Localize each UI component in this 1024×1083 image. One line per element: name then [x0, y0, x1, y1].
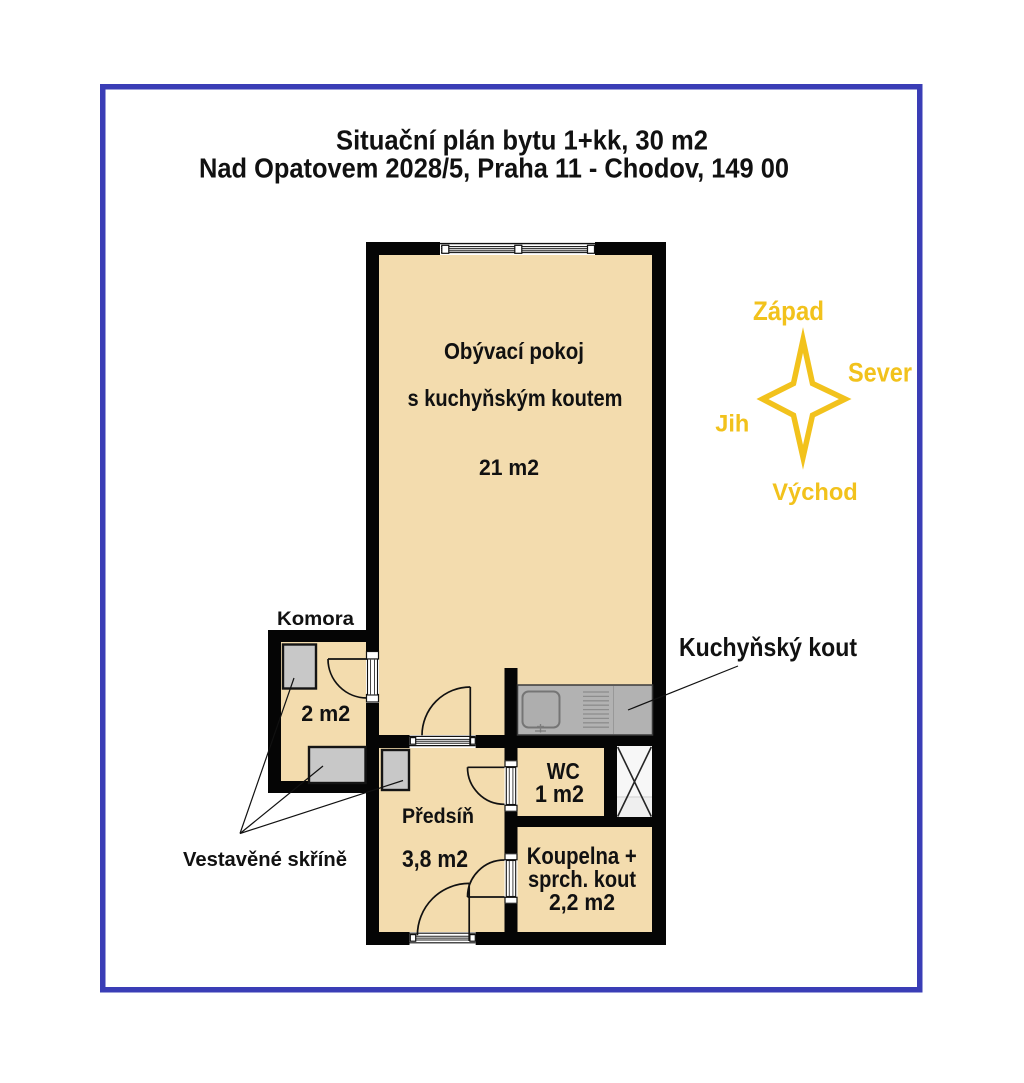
svg-text:Nad Opatovem 2028/5, Praha 11: Nad Opatovem 2028/5, Praha 11 - Chodov, …: [199, 153, 789, 184]
svg-text:s kuchyňským koutem: s kuchyňským koutem: [408, 385, 623, 411]
svg-text:1 m2: 1 m2: [535, 781, 584, 808]
svg-text:2,2 m2: 2,2 m2: [549, 889, 615, 915]
svg-text:Situační plán bytu 1+kk, 30 m2: Situační plán bytu 1+kk, 30 m2: [336, 124, 708, 155]
svg-text:Západ: Západ: [753, 296, 824, 326]
svg-text:Jih: Jih: [715, 411, 749, 438]
svg-text:Východ: Východ: [772, 479, 858, 506]
svg-text:21 m2: 21 m2: [479, 455, 539, 480]
svg-text:Vestavěné skříně: Vestavěné skříně: [183, 848, 347, 871]
svg-text:Komora: Komora: [277, 608, 354, 630]
svg-text:2 m2: 2 m2: [301, 701, 350, 726]
svg-text:Kuchyňský kout: Kuchyňský kout: [679, 632, 857, 662]
svg-text:Obývací pokoj: Obývací pokoj: [444, 338, 584, 364]
svg-text:3,8 m2: 3,8 m2: [402, 846, 468, 873]
svg-text:Předsíň: Předsíň: [402, 804, 474, 828]
svg-text:Sever: Sever: [848, 358, 912, 388]
